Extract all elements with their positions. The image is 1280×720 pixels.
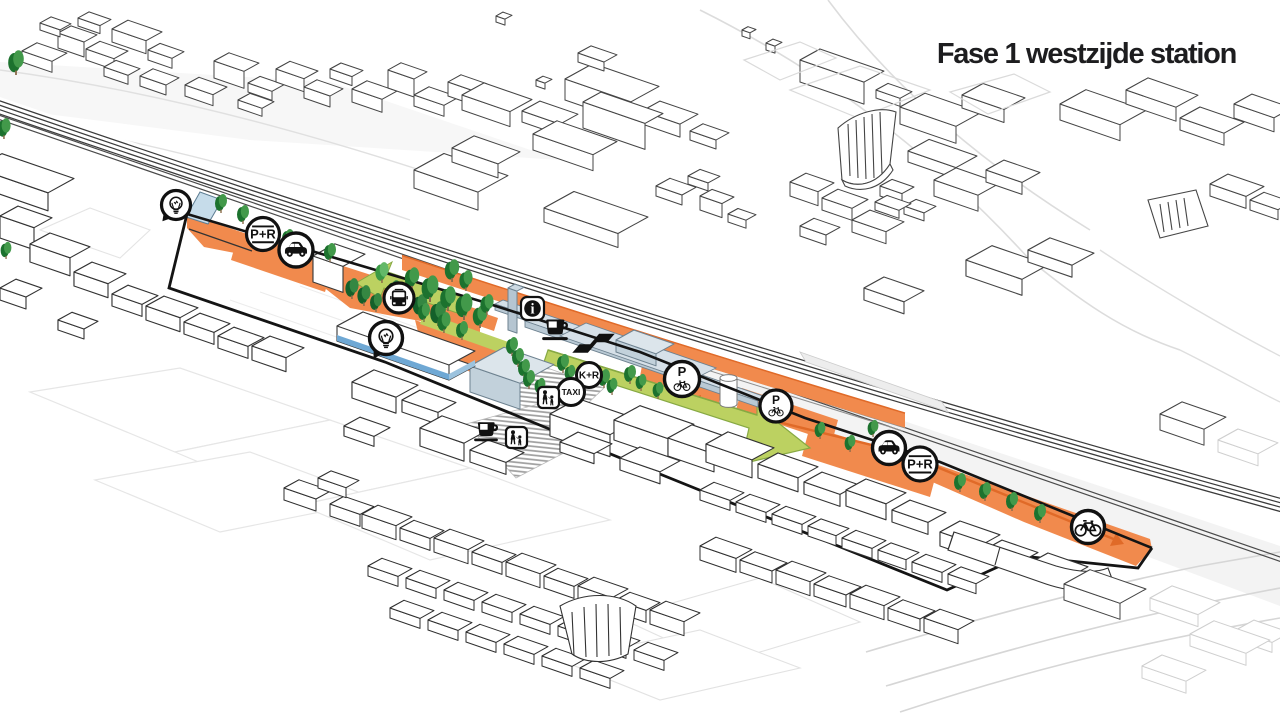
svg-text:TAXI: TAXI (562, 387, 581, 397)
svg-text:i: i (530, 302, 534, 318)
svg-text:P+R: P+R (907, 457, 933, 472)
svg-text:P: P (772, 393, 780, 407)
svg-text:Fase 1 westzijde station: Fase 1 westzijde station (937, 38, 1236, 70)
svg-text:K+R: K+R (579, 371, 600, 382)
svg-text:P+R: P+R (250, 227, 276, 242)
svg-text:P: P (678, 364, 687, 379)
